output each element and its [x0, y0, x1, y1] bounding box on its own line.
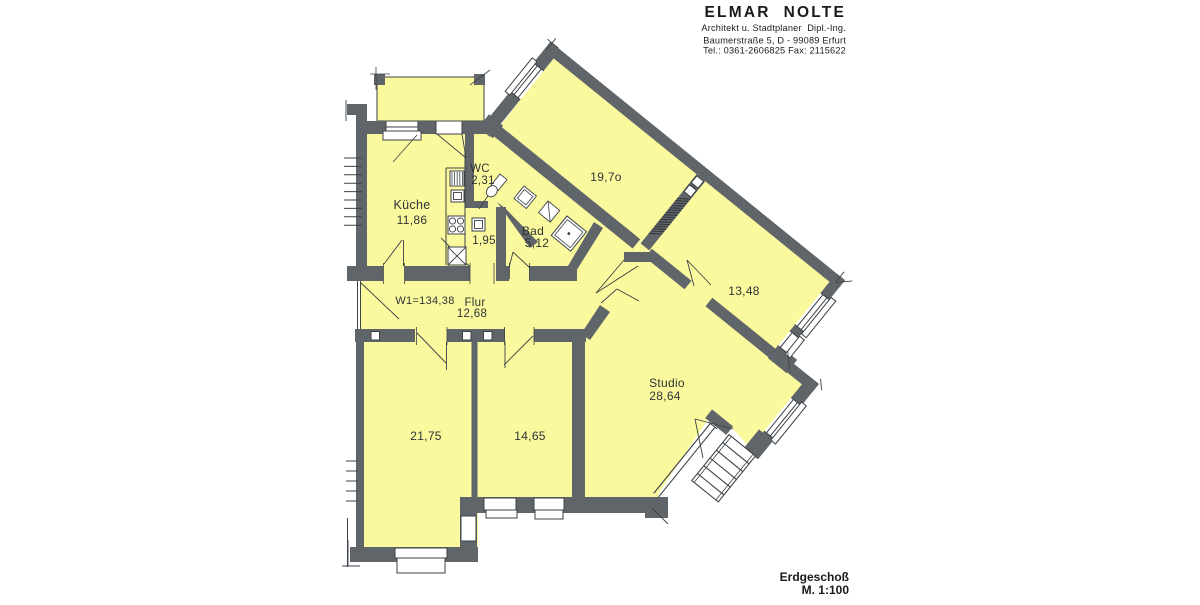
svg-text:28,64: 28,64: [649, 389, 681, 403]
svg-text:13,48: 13,48: [728, 284, 760, 298]
svg-text:1,95: 1,95: [472, 235, 496, 247]
svg-text:M. 1:100: M. 1:100: [802, 583, 850, 597]
svg-text:Tel.: 0361-2606825 Fax: 211562: Tel.: 0361-2606825 Fax: 2115622: [703, 46, 846, 56]
svg-text:2,31: 2,31: [471, 175, 495, 187]
svg-text:11,86: 11,86: [397, 213, 428, 227]
svg-text:21,75: 21,75: [410, 429, 442, 443]
svg-text:Architekt u. Stadtplaner Dipl: Architekt u. Stadtplaner Dipl.-Ing.: [701, 23, 846, 33]
svg-text:W1=134,38: W1=134,38: [395, 295, 454, 307]
svg-text:5,12: 5,12: [525, 236, 550, 250]
svg-text:WC: WC: [470, 163, 490, 175]
svg-text:19,7o: 19,7o: [590, 170, 622, 184]
svg-text:Erdgeschoß: Erdgeschoß: [780, 570, 849, 584]
svg-text:12,68: 12,68: [457, 308, 487, 320]
svg-text:Küche: Küche: [394, 198, 431, 212]
svg-text:Baumerstraße 5, D - 99089 Erfu: Baumerstraße 5, D - 99089 Erfurt: [703, 36, 846, 46]
svg-text:14,65: 14,65: [514, 429, 546, 443]
svg-text:Studio: Studio: [649, 376, 685, 390]
svg-text:ELMAR NOLTE: ELMAR NOLTE: [705, 4, 847, 21]
